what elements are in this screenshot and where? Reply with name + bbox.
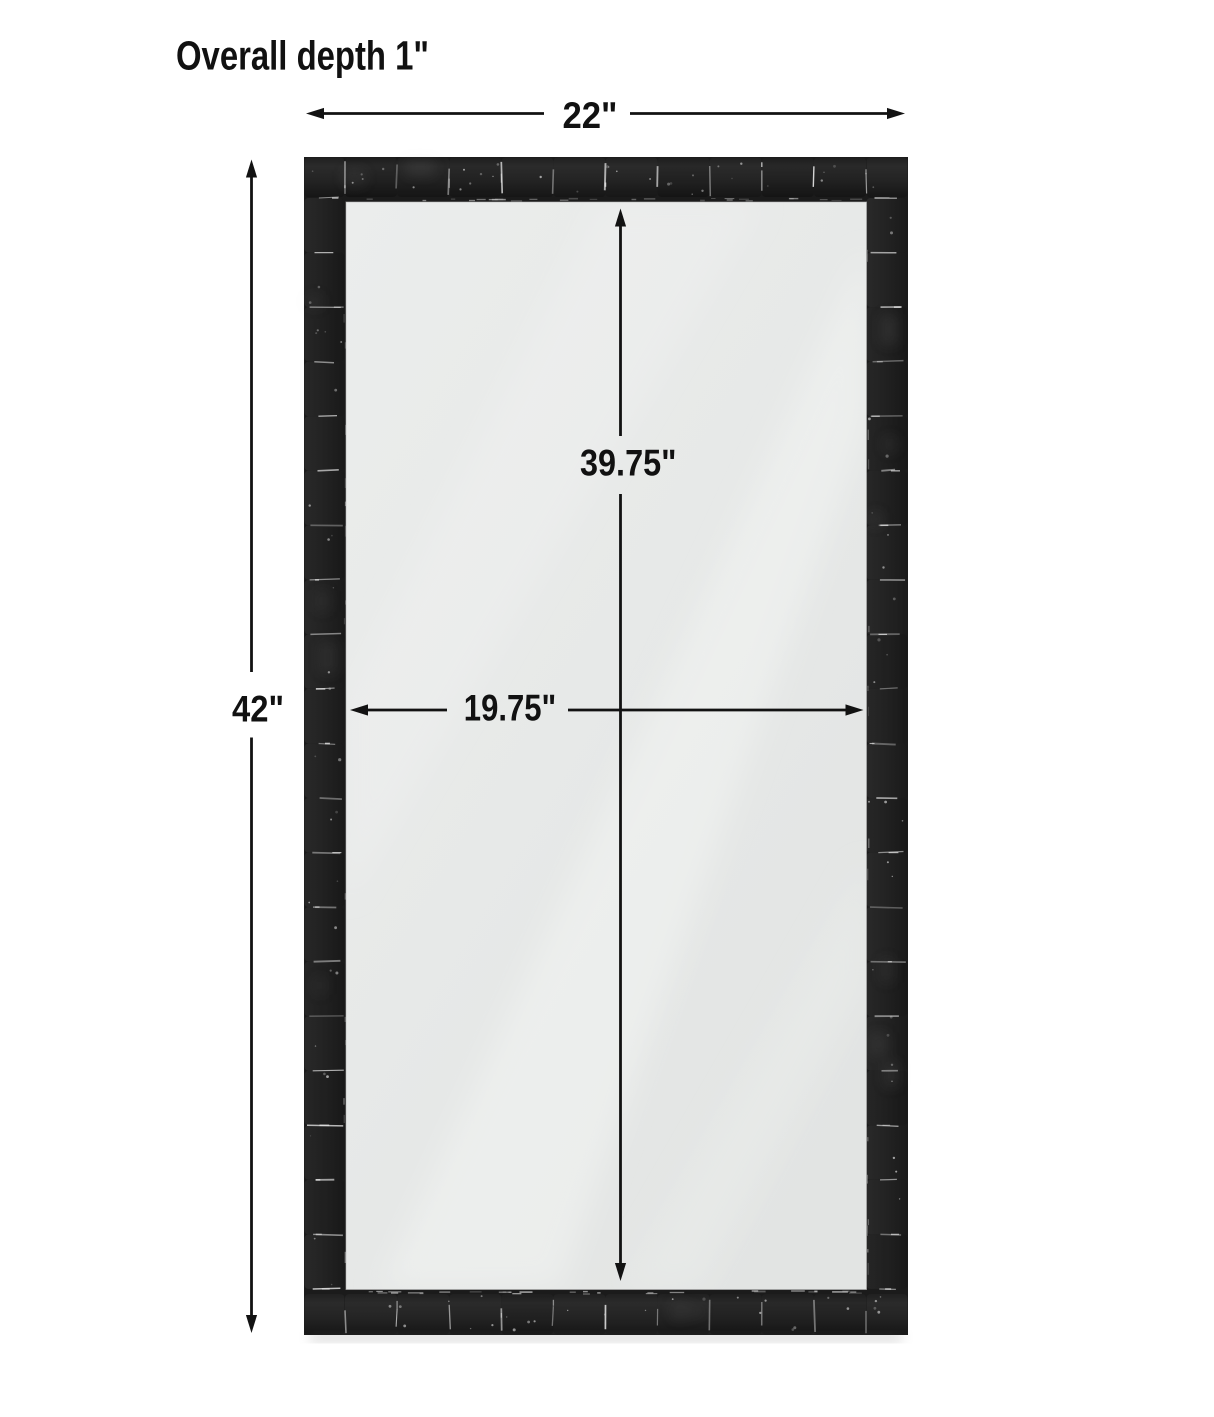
- svg-text:22": 22": [563, 94, 618, 136]
- svg-text:Overall depth 1": Overall depth 1": [176, 33, 429, 79]
- svg-text:42": 42": [232, 688, 284, 730]
- svg-text:19.75": 19.75": [464, 687, 557, 729]
- svg-text:39.75": 39.75": [580, 441, 677, 483]
